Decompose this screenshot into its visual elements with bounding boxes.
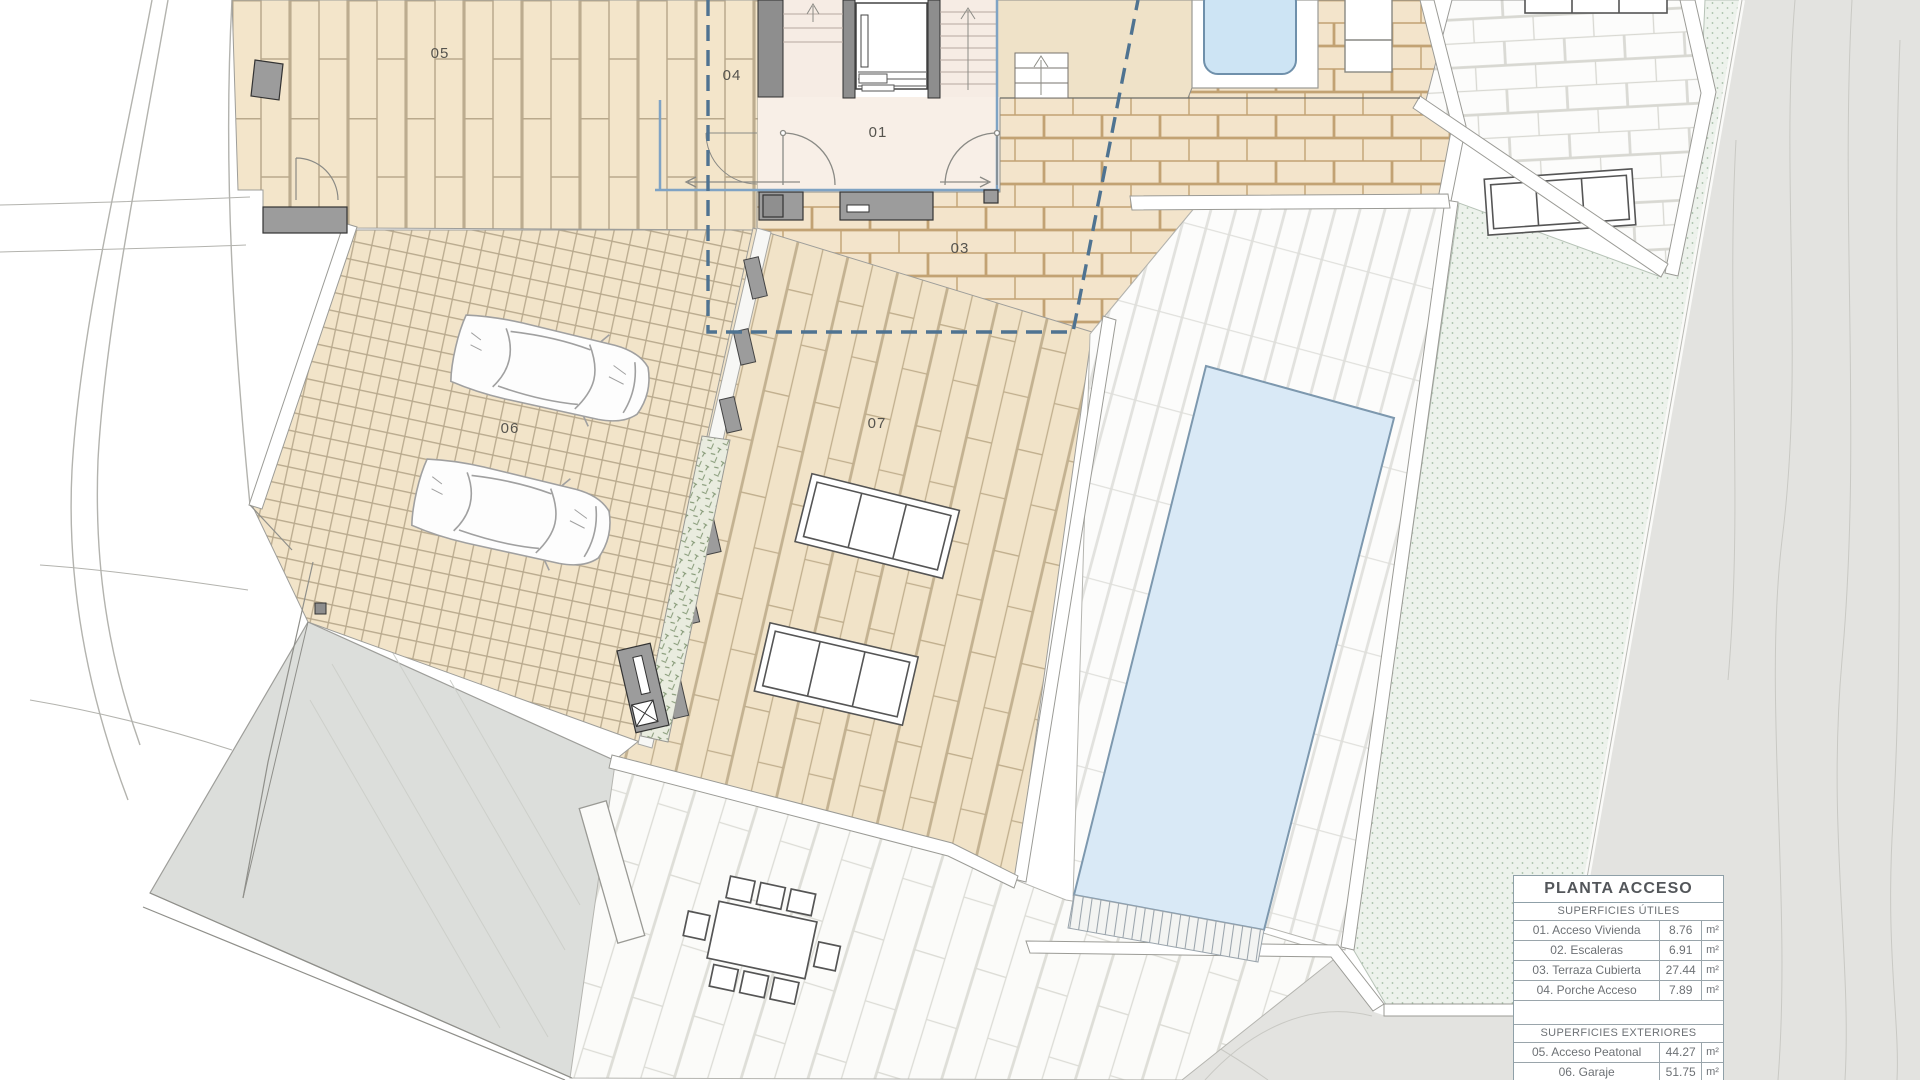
legend-title: PLANTA ACCESO: [1514, 876, 1723, 903]
legend-row: 01. Acceso Vivienda 8.76 m²: [1514, 921, 1723, 941]
legend-row: 02. Escaleras 6.91 m²: [1514, 941, 1723, 961]
label-07: 07: [868, 415, 887, 432]
entrance-room-01-floor: [758, 97, 1000, 190]
legend-row: 03. Terraza Cubierta 27.44 m²: [1514, 961, 1723, 981]
label-06: 06: [501, 420, 520, 437]
jacuzzi: [1192, 0, 1318, 88]
sofa-upper-1: [1525, 0, 1667, 13]
legend-row: 04. Porche Acceso 7.89 m²: [1514, 981, 1723, 1001]
label-05: 05: [431, 45, 450, 62]
floorplan-screenshot: 05 04 01 03 06 07 PLANTA ACCESO SUPERFIC…: [0, 0, 1920, 1080]
walkway-05-paving: [232, 0, 758, 230]
sun-lounger: [1345, 0, 1392, 72]
legend-row: 05. Acceso Peatonal 44.27 m²: [1514, 1043, 1723, 1063]
legend-spacer: [1514, 1001, 1723, 1025]
jacuzzi-water: [1204, 0, 1296, 74]
legend-section-header: SUPERFICIES EXTERIORES: [1514, 1025, 1723, 1043]
legend-row: 06. Garaje 51.75 m²: [1514, 1063, 1723, 1080]
legend-table: PLANTA ACCESO SUPERFICIES ÚTILES 01. Acc…: [1513, 875, 1724, 1080]
label-04: 04: [723, 67, 742, 84]
elevator: [843, 0, 940, 98]
garden-stair-3steps: [1015, 53, 1068, 98]
legend-section-header: SUPERFICIES ÚTILES: [1514, 903, 1723, 921]
label-03: 03: [951, 240, 970, 257]
label-01: 01: [869, 124, 888, 141]
